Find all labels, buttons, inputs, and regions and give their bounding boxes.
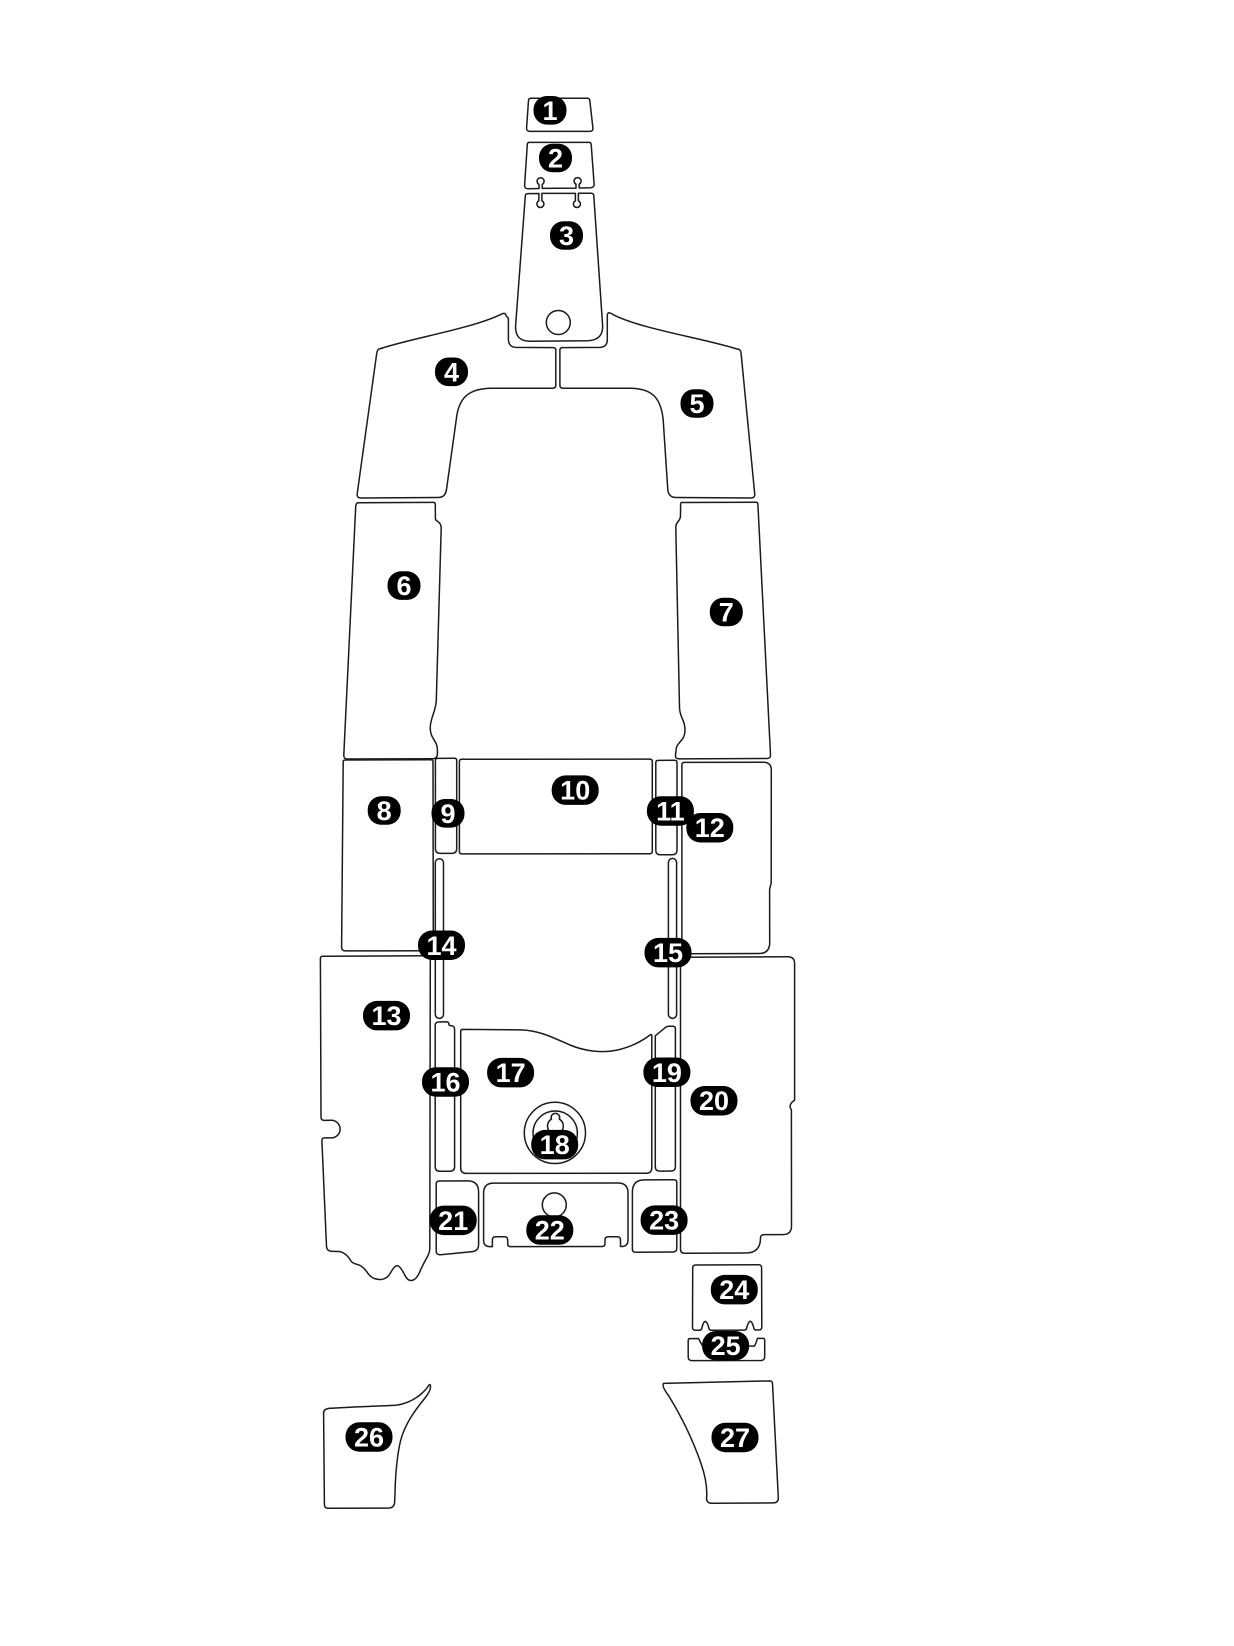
svg-text:27: 27	[720, 1423, 750, 1453]
svg-text:7: 7	[719, 598, 734, 628]
svg-text:19: 19	[652, 1058, 682, 1088]
svg-text:10: 10	[560, 776, 590, 806]
svg-text:1: 1	[542, 96, 557, 126]
svg-text:17: 17	[496, 1058, 526, 1088]
svg-text:2: 2	[548, 144, 563, 174]
svg-text:13: 13	[371, 1001, 401, 1031]
svg-text:9: 9	[440, 799, 455, 829]
svg-text:6: 6	[396, 571, 411, 601]
svg-text:11: 11	[656, 797, 685, 827]
svg-text:14: 14	[426, 931, 456, 961]
svg-text:25: 25	[711, 1331, 741, 1361]
svg-text:23: 23	[649, 1206, 679, 1236]
svg-text:3: 3	[559, 221, 574, 251]
svg-text:12: 12	[695, 813, 725, 843]
svg-text:15: 15	[653, 938, 683, 968]
svg-text:8: 8	[377, 796, 392, 826]
svg-text:21: 21	[438, 1206, 468, 1236]
svg-text:4: 4	[444, 357, 459, 387]
svg-text:26: 26	[354, 1423, 384, 1453]
svg-text:18: 18	[540, 1130, 570, 1160]
svg-text:16: 16	[430, 1068, 460, 1098]
svg-text:22: 22	[535, 1216, 565, 1246]
svg-text:24: 24	[719, 1275, 749, 1305]
svg-text:20: 20	[699, 1086, 729, 1116]
svg-text:5: 5	[689, 389, 704, 419]
